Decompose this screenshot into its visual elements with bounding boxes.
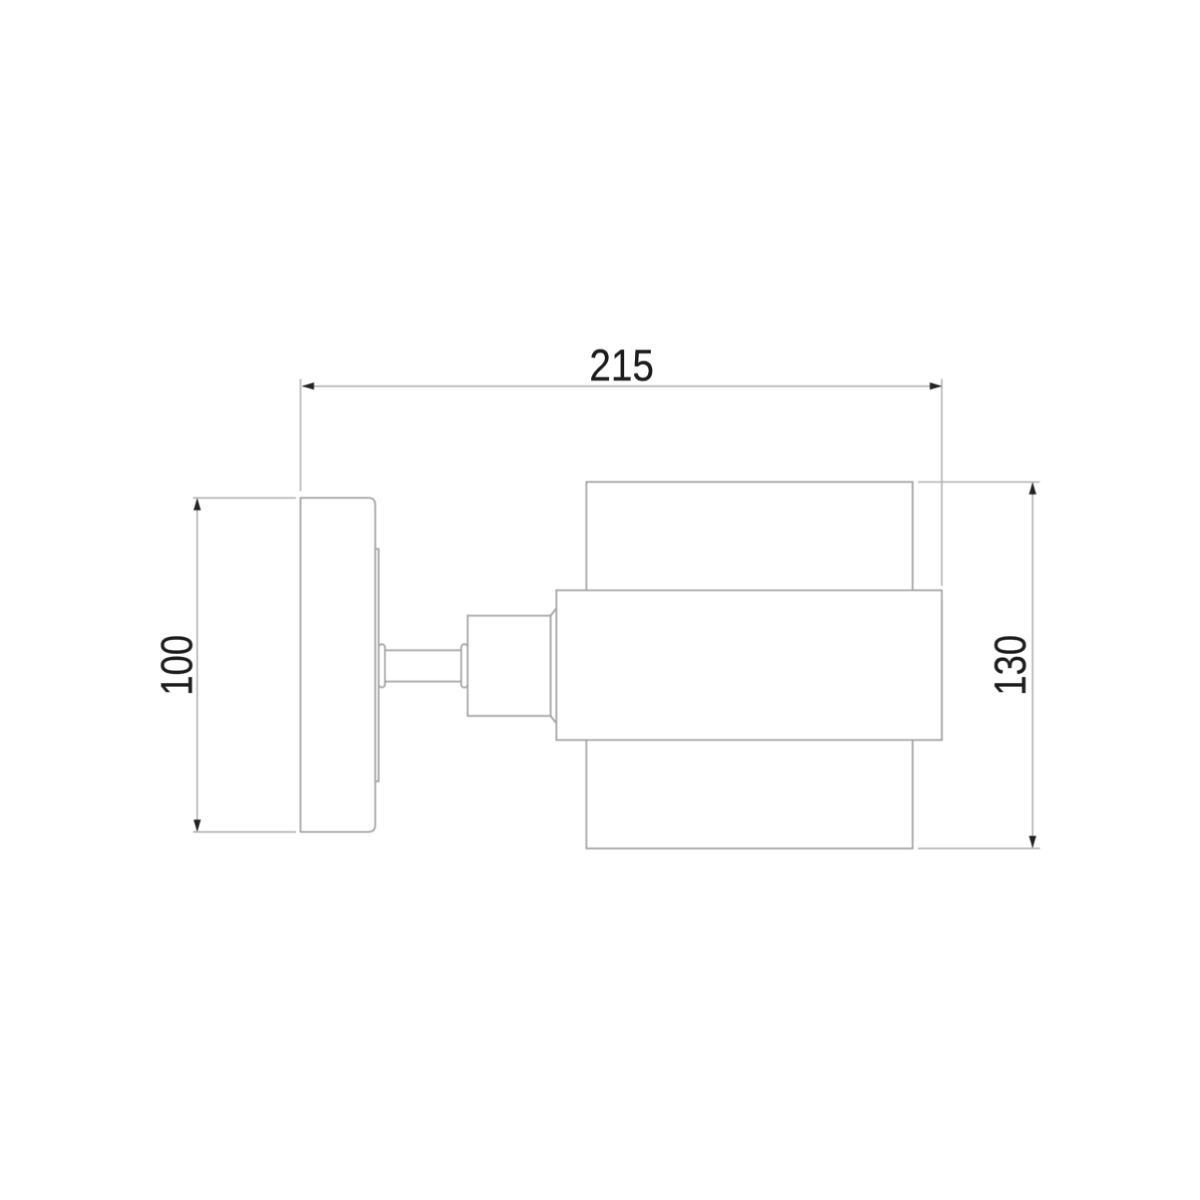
svg-text:130: 130: [985, 635, 1035, 696]
svg-text:215: 215: [589, 340, 654, 390]
svg-text:100: 100: [151, 635, 201, 696]
